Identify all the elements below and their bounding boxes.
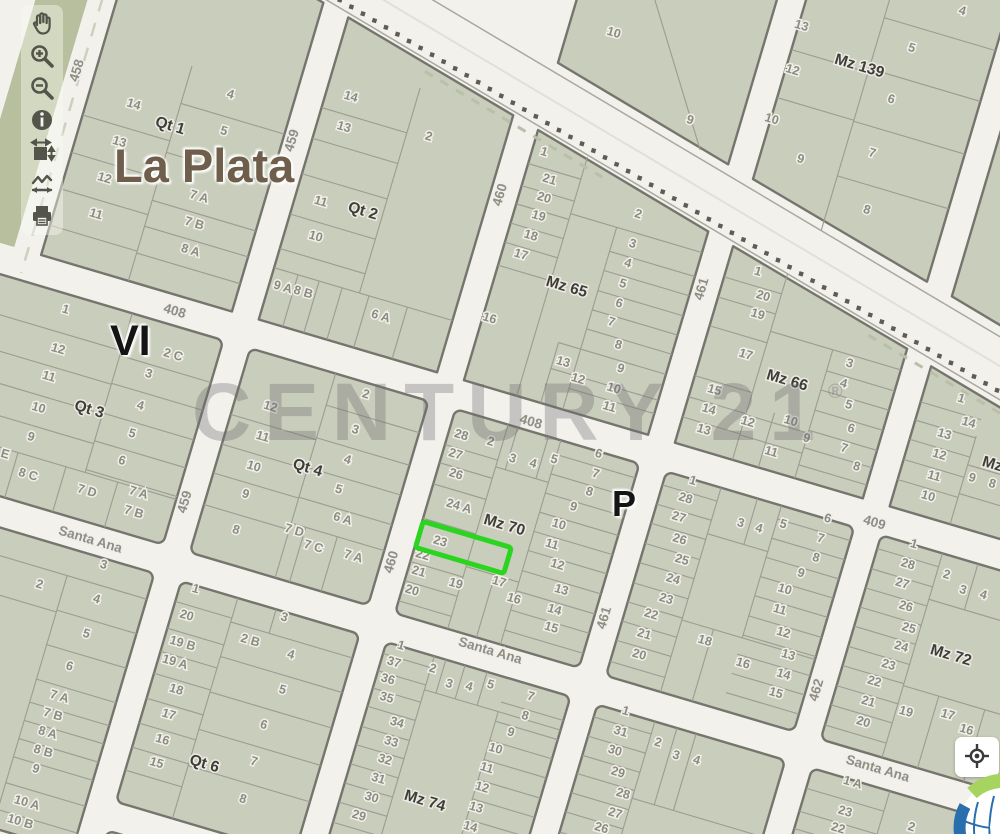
cadastral-map-canvas[interactable]: 14131211457 A7 B8 AQt 11413211109 A8 B6 …	[0, 0, 1000, 834]
zoom-in-icon	[28, 42, 56, 70]
info-icon	[28, 106, 56, 134]
print-icon	[28, 202, 56, 230]
city-label: La Plata	[114, 138, 294, 193]
parcel-label: 22	[830, 819, 847, 834]
measure-icon	[28, 170, 56, 198]
zoom-extent-button[interactable]	[24, 136, 60, 168]
map-toolbar	[21, 5, 63, 235]
locate-button[interactable]	[955, 737, 999, 777]
zone-label-p: P	[612, 483, 636, 525]
zoom-out-button[interactable]	[24, 72, 60, 104]
crosshair-icon	[962, 741, 992, 771]
pan-button[interactable]	[24, 8, 60, 40]
print-button[interactable]	[24, 200, 60, 232]
hand-icon	[28, 10, 56, 38]
info-button[interactable]	[24, 104, 60, 136]
zoom-out-icon	[28, 74, 56, 102]
measure-button[interactable]	[24, 168, 60, 200]
zone-label-vi: VI	[110, 317, 151, 366]
map-viewer: 14131211457 A7 B8 AQt 11413211109 A8 B6 …	[0, 0, 1000, 834]
zoom-in-button[interactable]	[24, 40, 60, 72]
extent-icon	[28, 138, 56, 166]
